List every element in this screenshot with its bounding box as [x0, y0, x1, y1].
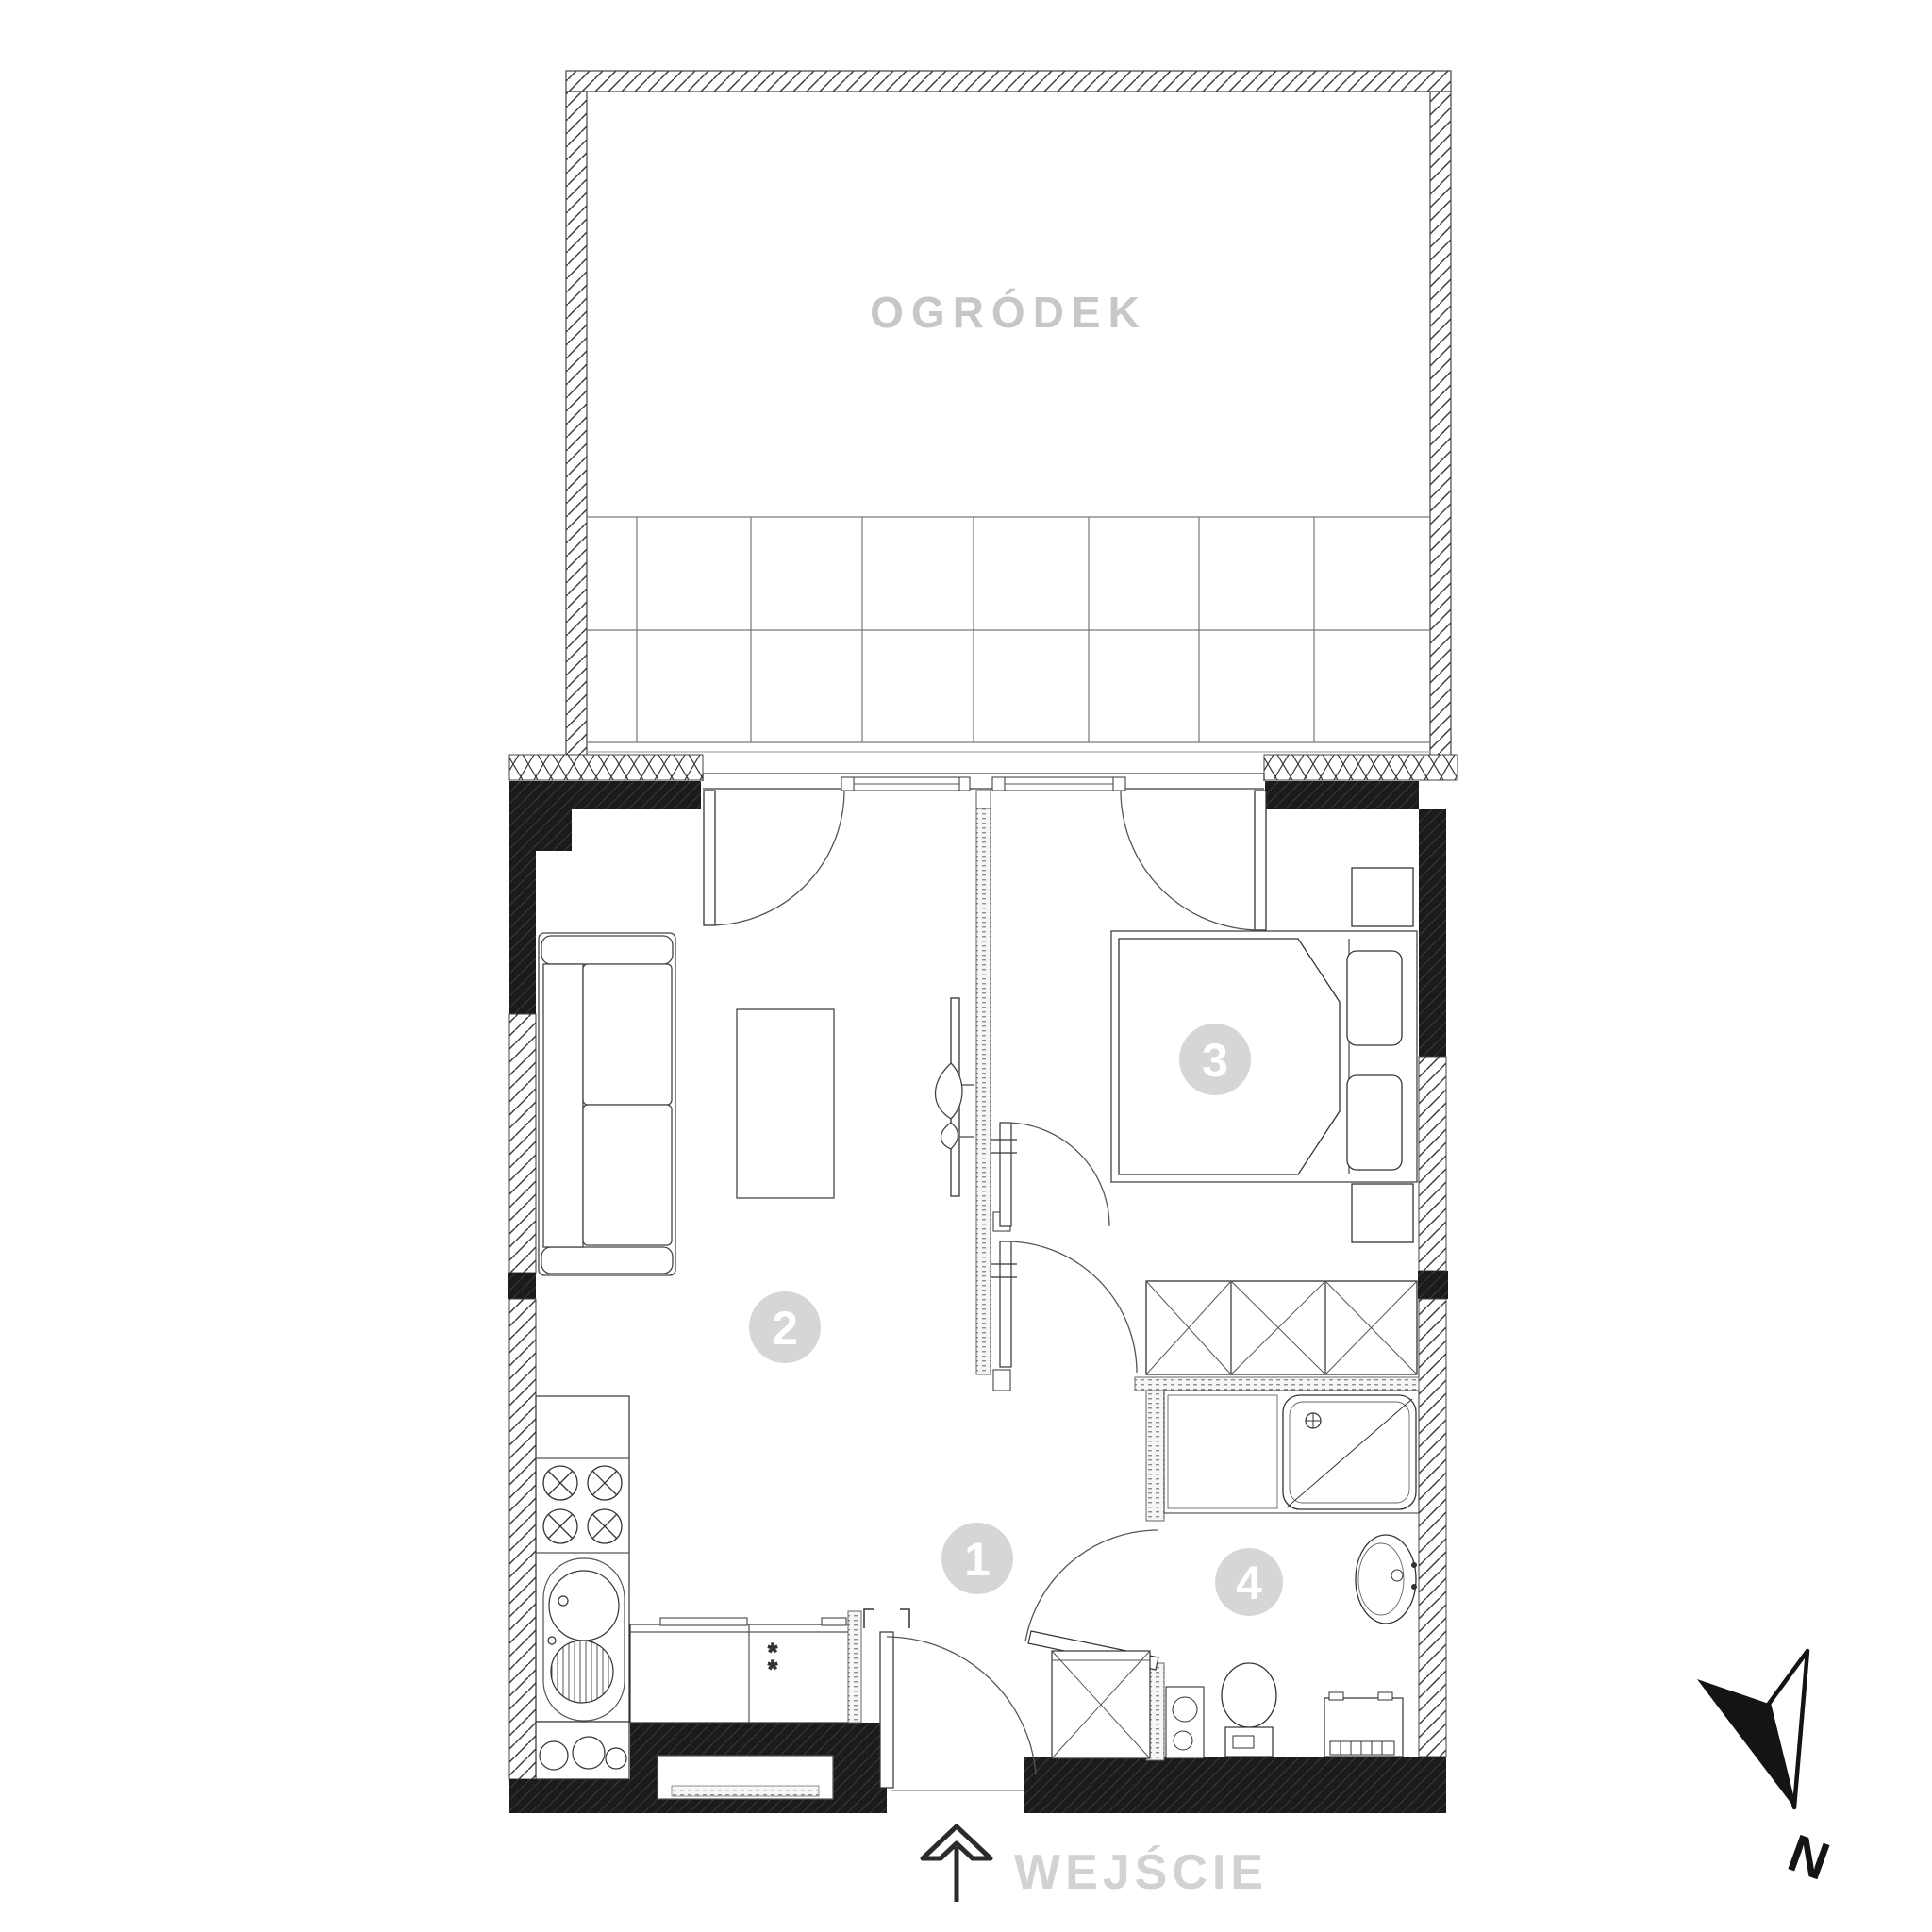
kitchen-wall-stub: [848, 1611, 861, 1723]
wall-left-pier: [508, 1273, 536, 1299]
sofa-armrest-top: [541, 936, 673, 964]
sink-bowl: [549, 1571, 619, 1641]
window-mullion-3: [992, 777, 1005, 791]
garden-label: OGRÓDEK: [870, 288, 1147, 337]
washbasin-tap-dot-2: [1411, 1584, 1417, 1590]
wall-right-pier: [1418, 1271, 1448, 1299]
wall-top-right: [1265, 781, 1419, 809]
badge-room-4-label: 4: [1236, 1557, 1262, 1609]
floor-plan: OGRÓDEK: [0, 0, 1932, 1932]
garden-wall-right: [1430, 92, 1451, 758]
badge-room-1-label: 1: [964, 1533, 991, 1586]
sink-drainer: [551, 1641, 613, 1703]
sofa-backrest: [543, 964, 583, 1247]
washbasin-tap-dot-1: [1411, 1562, 1417, 1568]
kitchen-window-sill: [672, 1786, 819, 1796]
window-mullion-2: [959, 777, 970, 791]
window-mullion-1: [841, 777, 854, 791]
wall-right-upper: [1419, 809, 1446, 1057]
insulation-strip-left: [509, 755, 703, 780]
wall-left-lower: [509, 1299, 536, 1779]
badge-room-3-label: 3: [1202, 1034, 1228, 1087]
wardrobe: [1135, 1281, 1419, 1391]
badge-room-2-label: 2: [772, 1302, 798, 1355]
partition-living-bedroom: [976, 808, 991, 1374]
bedroom-door-leaf: [1000, 1123, 1011, 1226]
nightstand-bottom: [1352, 1184, 1413, 1242]
radiator-tab-1: [1329, 1692, 1343, 1700]
radiator-tab-2: [1378, 1692, 1392, 1700]
floor-plan-canvas: OGRÓDEK: [0, 0, 1932, 1932]
fridge-mark-2: *: [768, 1655, 778, 1683]
bedroom-terrace-door-leaf: [1255, 791, 1266, 930]
window-mullion-4: [1113, 777, 1125, 791]
counter-ledge-1: [660, 1618, 747, 1625]
bed-pillow-1: [1347, 951, 1402, 1045]
shower-tray: [1283, 1395, 1416, 1509]
bed-pillow-2: [1347, 1075, 1402, 1170]
wall-bottom-right: [1024, 1757, 1446, 1813]
washbasin: [1356, 1535, 1416, 1624]
entrance-door-leaf: [880, 1632, 893, 1788]
towel-radiator: [1324, 1698, 1403, 1757]
wall-right-window-section: [1419, 1057, 1446, 1271]
wardrobe-front-wall: [1135, 1377, 1419, 1391]
sofa-armrest-bottom: [541, 1247, 673, 1274]
partition-top-connector: [976, 791, 991, 808]
wall-right-lower: [1419, 1299, 1446, 1757]
living-terrace-door-leaf: [704, 791, 715, 925]
wardrobe-outline: [1146, 1281, 1417, 1374]
door-hinge-block-lower: [993, 1370, 1010, 1391]
kitchen-counter-bottom: [630, 1624, 849, 1723]
bathroom-wall-upper: [1146, 1391, 1164, 1521]
coffee-table: [737, 1009, 834, 1198]
nightstand-top: [1352, 868, 1413, 926]
toilet-bowl: [1222, 1663, 1276, 1727]
counter-ledge-2: [822, 1618, 846, 1625]
sofa-cushion-2: [583, 1105, 672, 1245]
wall-left-upper: [509, 809, 536, 1014]
entrance-label: WEJŚCIE: [1014, 1845, 1268, 1900]
garden-wall-left: [566, 92, 587, 758]
wall-top-left: [509, 781, 701, 809]
insulation-strip-right: [1264, 755, 1457, 780]
sofa-cushion-1: [583, 964, 672, 1105]
garden-wall-top: [566, 71, 1451, 92]
wall-left-window-section: [509, 1014, 536, 1273]
hall-door-leaf: [1000, 1241, 1011, 1367]
kitchen-base-unit: [536, 1722, 629, 1779]
wall-bottom-left: [509, 1779, 630, 1813]
